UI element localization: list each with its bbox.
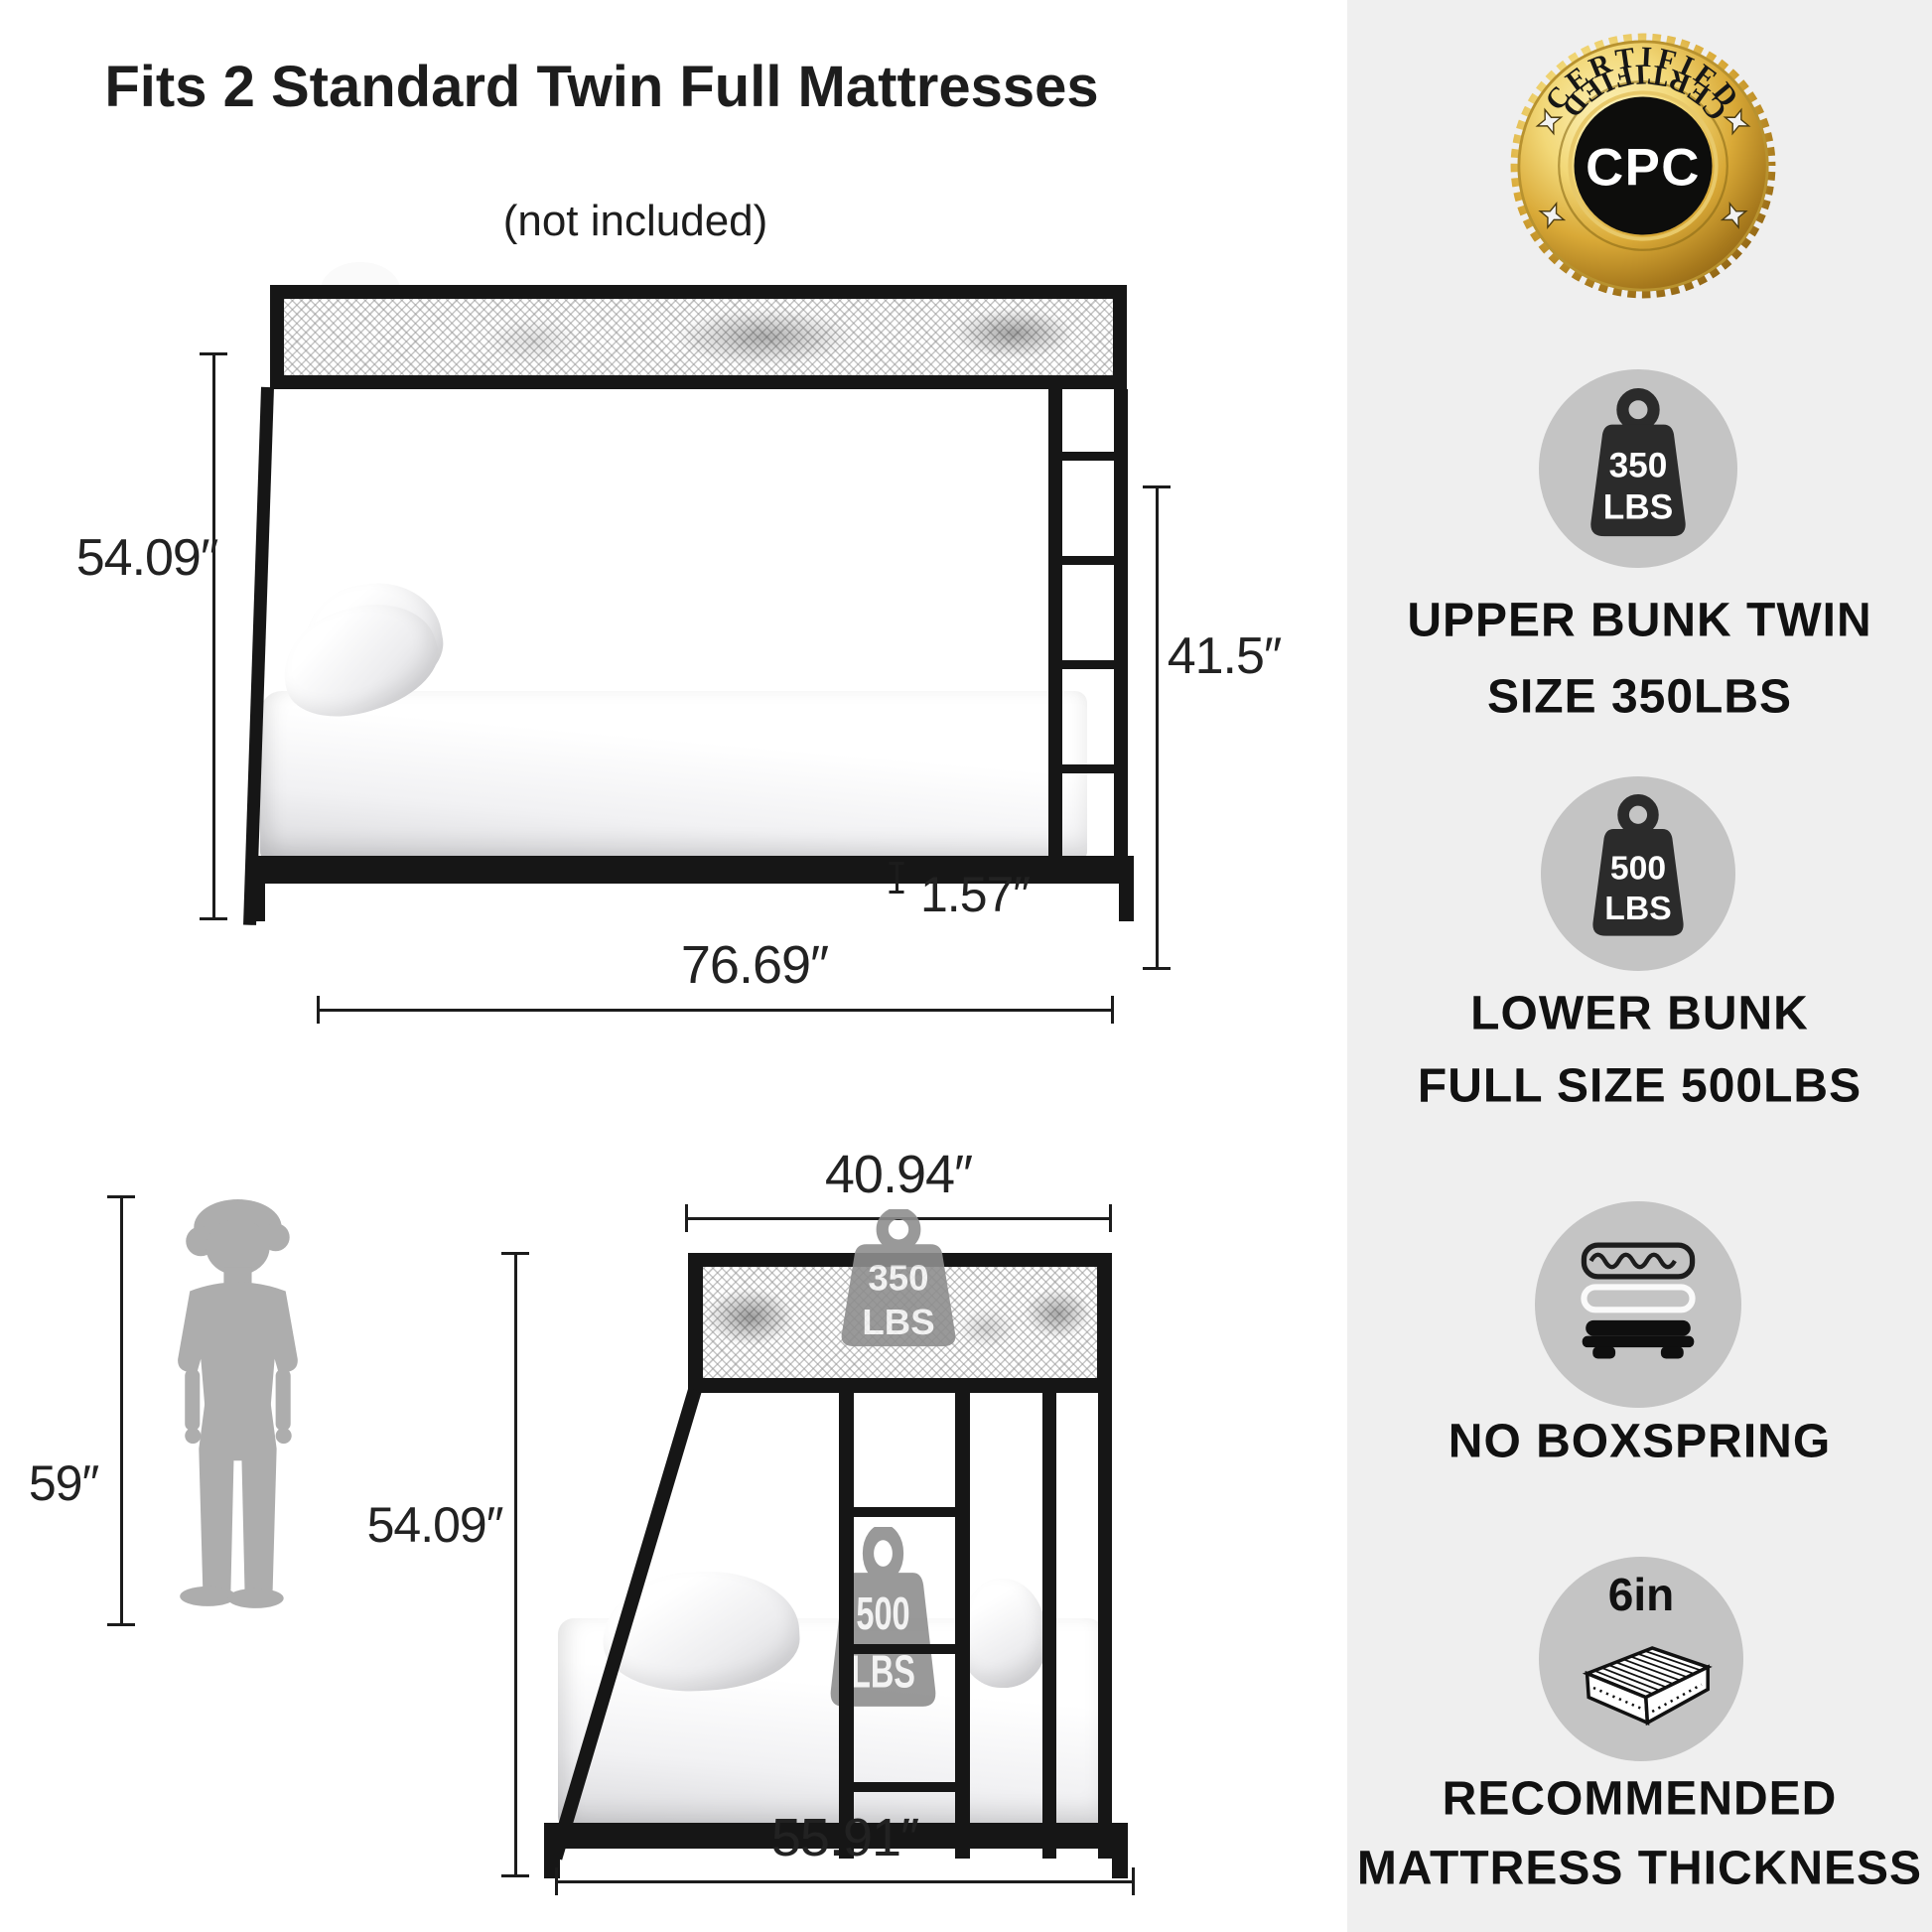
weight-350-icon: 350 LBS	[1571, 388, 1706, 547]
dimension-line-height	[212, 353, 215, 919]
dimension-line-length	[318, 1009, 1113, 1012]
ladder-rung	[1055, 452, 1121, 461]
bed-foot	[1119, 884, 1134, 921]
dimension-label-length: 76.69″	[681, 934, 828, 996]
ladder-rung	[1055, 660, 1121, 669]
weight-unit-label: LBS	[1603, 488, 1674, 527]
ghost-weight-value-label: 500	[856, 1588, 909, 1639]
dimension-label-frame-thickness: 1.57″	[920, 866, 1030, 923]
feature-text-line: NO BOXSPRING	[1347, 1415, 1932, 1469]
weight-500-icon: 500 LBS	[1574, 794, 1703, 946]
ladder-rung	[839, 1644, 970, 1654]
ghost-weight-unit-label: LBS	[851, 1647, 915, 1698]
lower-bunk-mattress	[260, 691, 1087, 860]
feature-text-line: FULL SIZE 500LBS	[1347, 1059, 1932, 1114]
weight-value-label: 500	[1610, 850, 1666, 888]
dimension-line-front-height	[514, 1253, 517, 1876]
pillow	[959, 1579, 1046, 1688]
ladder-rung	[839, 1782, 970, 1792]
upper-bunk-mesh-panel	[284, 299, 1113, 375]
feature-text-line: LOWER BUNK	[1347, 987, 1932, 1041]
dimension-line-inner-height	[1156, 486, 1159, 969]
dimension-label-child-height: 59″	[29, 1454, 98, 1512]
ghost-weight-500-icon: 500 LBS	[796, 1527, 970, 1721]
ghost-weight-unit-label: LBS	[862, 1302, 934, 1342]
dimension-line-bottom-width	[556, 1880, 1134, 1883]
weight-value-label: 350	[1609, 446, 1668, 484]
bed-foot	[250, 884, 265, 921]
ladder-rung	[1055, 764, 1121, 773]
feature-text-line: SIZE 350LBS	[1347, 670, 1932, 725]
mattress-3d-icon	[1549, 1600, 1733, 1759]
feature-text-line: RECOMMENDED	[1347, 1772, 1932, 1827]
dimension-tick-frame-thickness	[896, 863, 898, 893]
product-infographic: CERTIFIED CERTIFIED CPC 350 LBS UPPER BU…	[0, 0, 1932, 1932]
ghost-weight-350-icon: 350 LBS	[804, 1209, 993, 1357]
dimension-label-height: 54.09″	[76, 528, 218, 588]
badge-center-text: CPC	[1586, 138, 1701, 197]
cpc-certified-badge-icon: CERTIFIED CERTIFIED CPC	[1505, 28, 1781, 304]
page-subtitle: (not included)	[503, 197, 768, 246]
ladder-rung	[1055, 556, 1121, 565]
ghost-weight-value-label: 350	[868, 1257, 928, 1298]
feature-text-line: UPPER BUNK TWIN	[1347, 594, 1932, 648]
mattress-boxspring-icon	[1551, 1217, 1725, 1392]
page-title: Fits 2 Standard Twin Full Mattresses	[104, 54, 1098, 120]
child-silhouette	[137, 1189, 353, 1628]
bed-post-right-inner	[1042, 1392, 1056, 1859]
bed-post-right-outer	[1098, 1392, 1112, 1859]
dimension-label-inner-height: 41.5″	[1168, 626, 1282, 686]
feature-text-line: MATTRESS THICKNESS	[1347, 1842, 1932, 1896]
dimension-line-child-height	[120, 1196, 123, 1625]
ladder-rung	[839, 1507, 970, 1517]
dimension-label-front-height: 54.09″	[367, 1496, 503, 1554]
bed-foot	[1112, 1849, 1128, 1878]
dimension-label-top-width: 40.94″	[825, 1144, 972, 1205]
dimension-label-bottom-width: 55.91″	[771, 1807, 918, 1868]
weight-unit-label: LBS	[1604, 890, 1671, 927]
